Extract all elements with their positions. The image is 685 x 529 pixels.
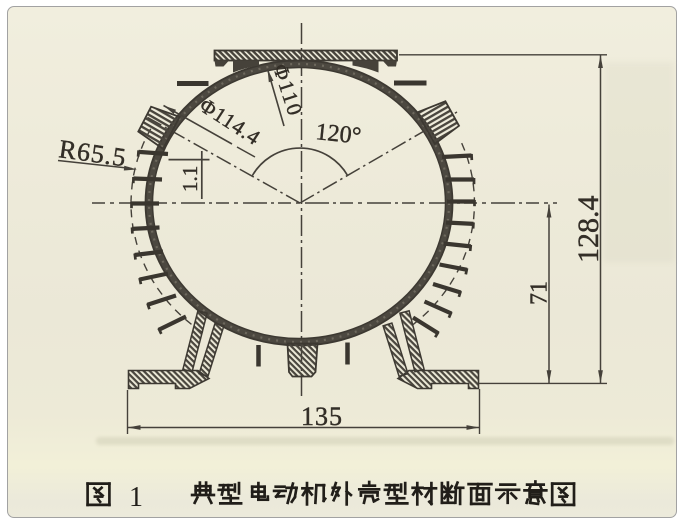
svg-text:1.1: 1.1: [178, 166, 202, 192]
svg-text:135: 135: [301, 402, 343, 431]
svg-text:Φ114.4: Φ114.4: [195, 93, 265, 150]
svg-text:71: 71: [527, 281, 553, 305]
svg-text:128.4: 128.4: [572, 196, 605, 264]
svg-text:120°: 120°: [314, 119, 362, 150]
svg-text:1: 1: [129, 482, 143, 513]
